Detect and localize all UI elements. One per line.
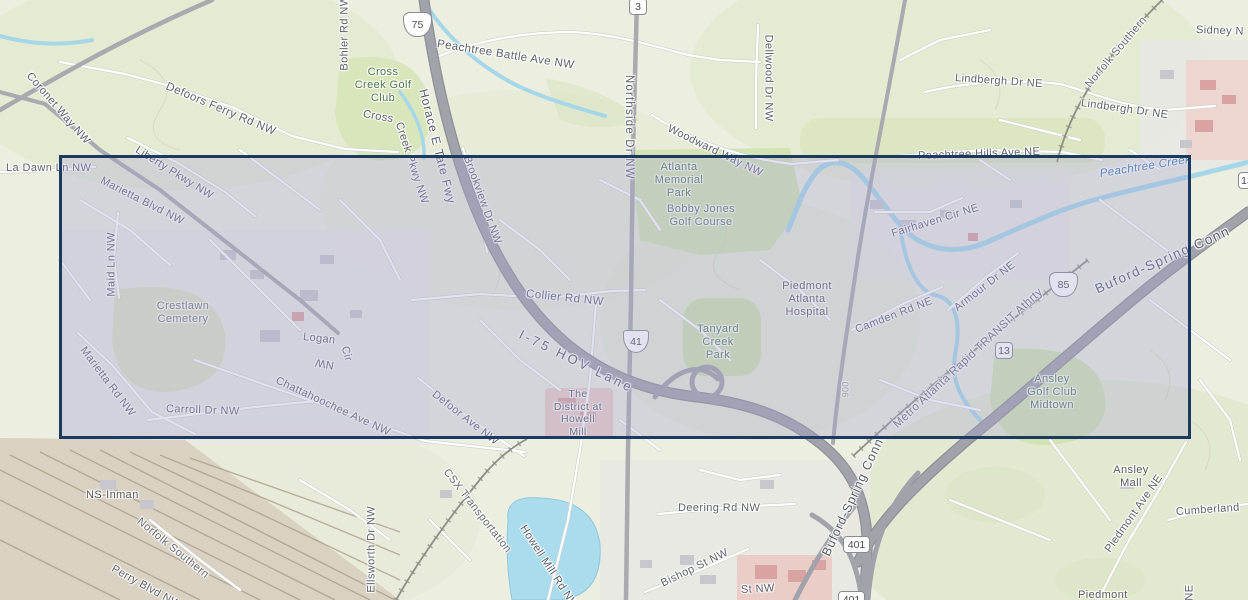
shield-i75-number: 75 (412, 19, 424, 31)
shield-sr13-edge-number: 13 (1241, 175, 1248, 187)
place-label-piedmont-partial: Piedmont (1078, 589, 1128, 600)
shield-sr3-icon: 3 (629, 0, 647, 15)
park-label-cross-creek-golf-club: Cross Creek Golf Club (355, 66, 412, 106)
road-label-ne-partial: NE (1183, 585, 1196, 600)
selection-rectangle[interactable] (59, 155, 1191, 439)
road-label-deering: Deering Rd NW (678, 502, 760, 515)
road-label-bohler-rd: Bohler Rd NW (338, 0, 351, 71)
road-label-st-nw: St NW (741, 582, 775, 597)
place-label-ns-inman: NS-Inman (86, 489, 139, 502)
place-label-ansley-mall: Ansley Mall (1113, 464, 1148, 490)
road-label-ellsworth: Ellsworth Dr NW (365, 506, 378, 593)
shield-sr3-number: 3 (635, 1, 641, 13)
shield-sr401-icon: 401 (843, 536, 870, 553)
shield-sr401-edge-icon: 401 (838, 591, 865, 600)
road-label-sidney: Sidney N (1196, 24, 1244, 39)
road-label-dellwood-dr: Dellwood Dr NW (761, 35, 774, 122)
map-canvas[interactable]: Coronet Way NW Defoors Ferry Rd NW Bohle… (0, 0, 1248, 600)
shield-sr401-number: 401 (848, 539, 866, 551)
shield-sr401-edge-number: 401 (843, 594, 861, 600)
shield-sr13-edge-icon: 13 (1238, 172, 1248, 189)
